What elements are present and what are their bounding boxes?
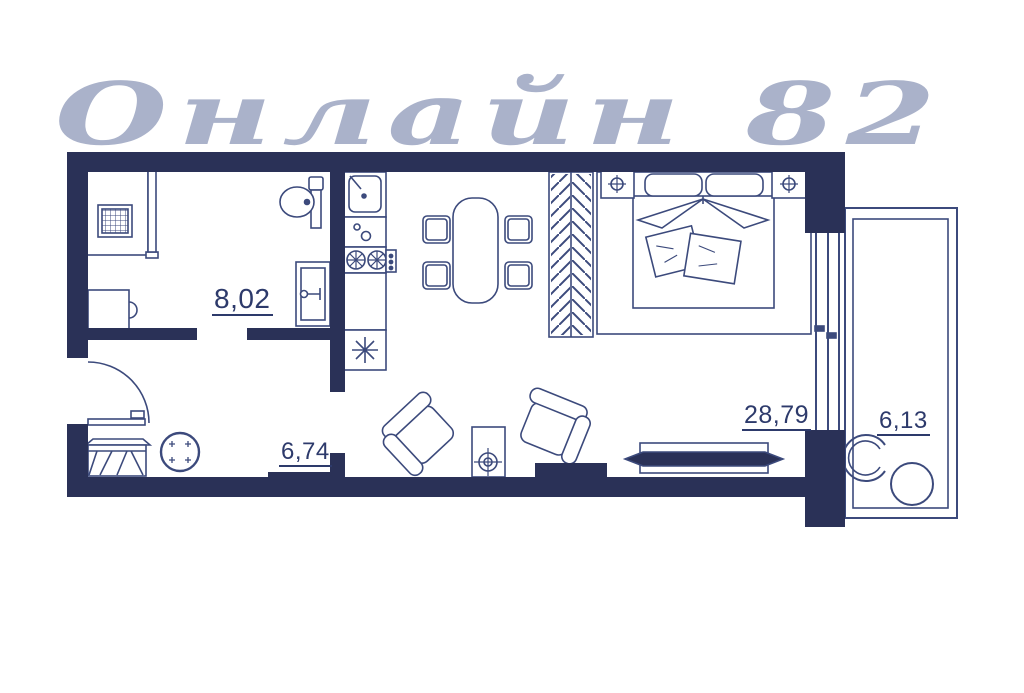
area-label-hallway: 6,74 bbox=[279, 439, 332, 467]
decor-pillow bbox=[684, 233, 741, 283]
kitchen-counter bbox=[344, 217, 386, 247]
round-stool bbox=[161, 433, 199, 471]
shoe-bench bbox=[86, 439, 150, 476]
wardrobe bbox=[549, 172, 593, 337]
kitchen-sink bbox=[344, 172, 386, 217]
dining-table bbox=[453, 198, 498, 303]
armchair bbox=[511, 386, 595, 466]
kitchen-counter bbox=[344, 273, 386, 330]
floor-plan: 8,02 6,74 28,79 6,13 Онлайн 82 bbox=[0, 0, 1024, 693]
area-label-bathroom: 8,02 bbox=[212, 284, 273, 316]
dining-chair bbox=[423, 216, 450, 243]
wall-bathroom-bottom-right bbox=[247, 328, 343, 340]
wall-divider-upper bbox=[330, 152, 345, 392]
entrance-door bbox=[88, 362, 149, 425]
dining-chair bbox=[505, 262, 532, 289]
wall-left-upper bbox=[67, 152, 88, 358]
window bbox=[815, 233, 839, 430]
wall-right-lower bbox=[805, 430, 845, 527]
wall-right-upper bbox=[805, 152, 845, 233]
wall-bathroom-bottom-left bbox=[87, 328, 197, 340]
stove bbox=[344, 247, 396, 273]
wall-bottom bbox=[67, 477, 845, 497]
floor-lamp bbox=[472, 427, 505, 477]
tv bbox=[625, 452, 783, 466]
area-label-living-kitchen: 28,79 bbox=[742, 402, 811, 431]
balcony-table bbox=[891, 463, 933, 505]
shower-cabin bbox=[87, 166, 158, 258]
dining-chair bbox=[505, 216, 532, 243]
wall-pilaster-hall bbox=[268, 472, 345, 497]
wall-pilaster-living bbox=[535, 463, 607, 497]
wall-top bbox=[67, 152, 845, 172]
furniture-layer bbox=[0, 0, 1024, 693]
toilet bbox=[280, 177, 323, 228]
dining-chair bbox=[423, 262, 450, 289]
refrigerator bbox=[344, 330, 386, 370]
balcony-chair bbox=[843, 435, 885, 481]
nightstand bbox=[601, 171, 634, 198]
armchair bbox=[374, 389, 463, 478]
washbasin-vanity bbox=[296, 262, 330, 326]
nightstand bbox=[772, 171, 806, 198]
area-label-balcony: 6,13 bbox=[877, 408, 930, 436]
